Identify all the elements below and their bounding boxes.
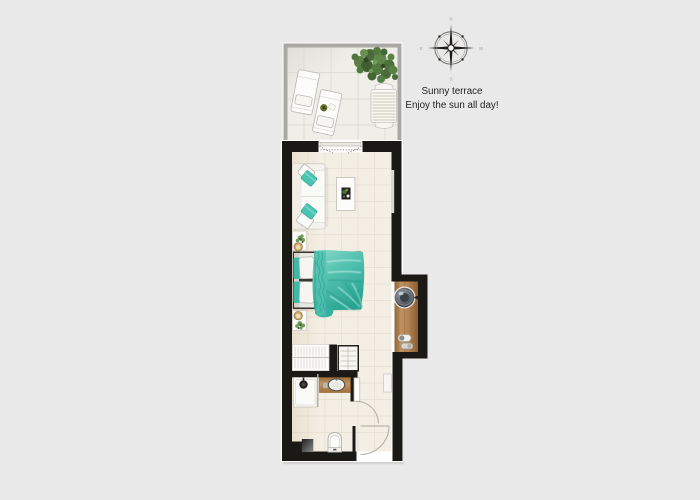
svg-text:E: E xyxy=(420,46,423,51)
svg-text:S: S xyxy=(450,77,453,82)
svg-text:Sunny terrace: Sunny terrace xyxy=(422,86,484,97)
svg-text:Enjoy the sun all day!: Enjoy the sun all day! xyxy=(405,100,498,111)
svg-text:N: N xyxy=(449,17,452,22)
